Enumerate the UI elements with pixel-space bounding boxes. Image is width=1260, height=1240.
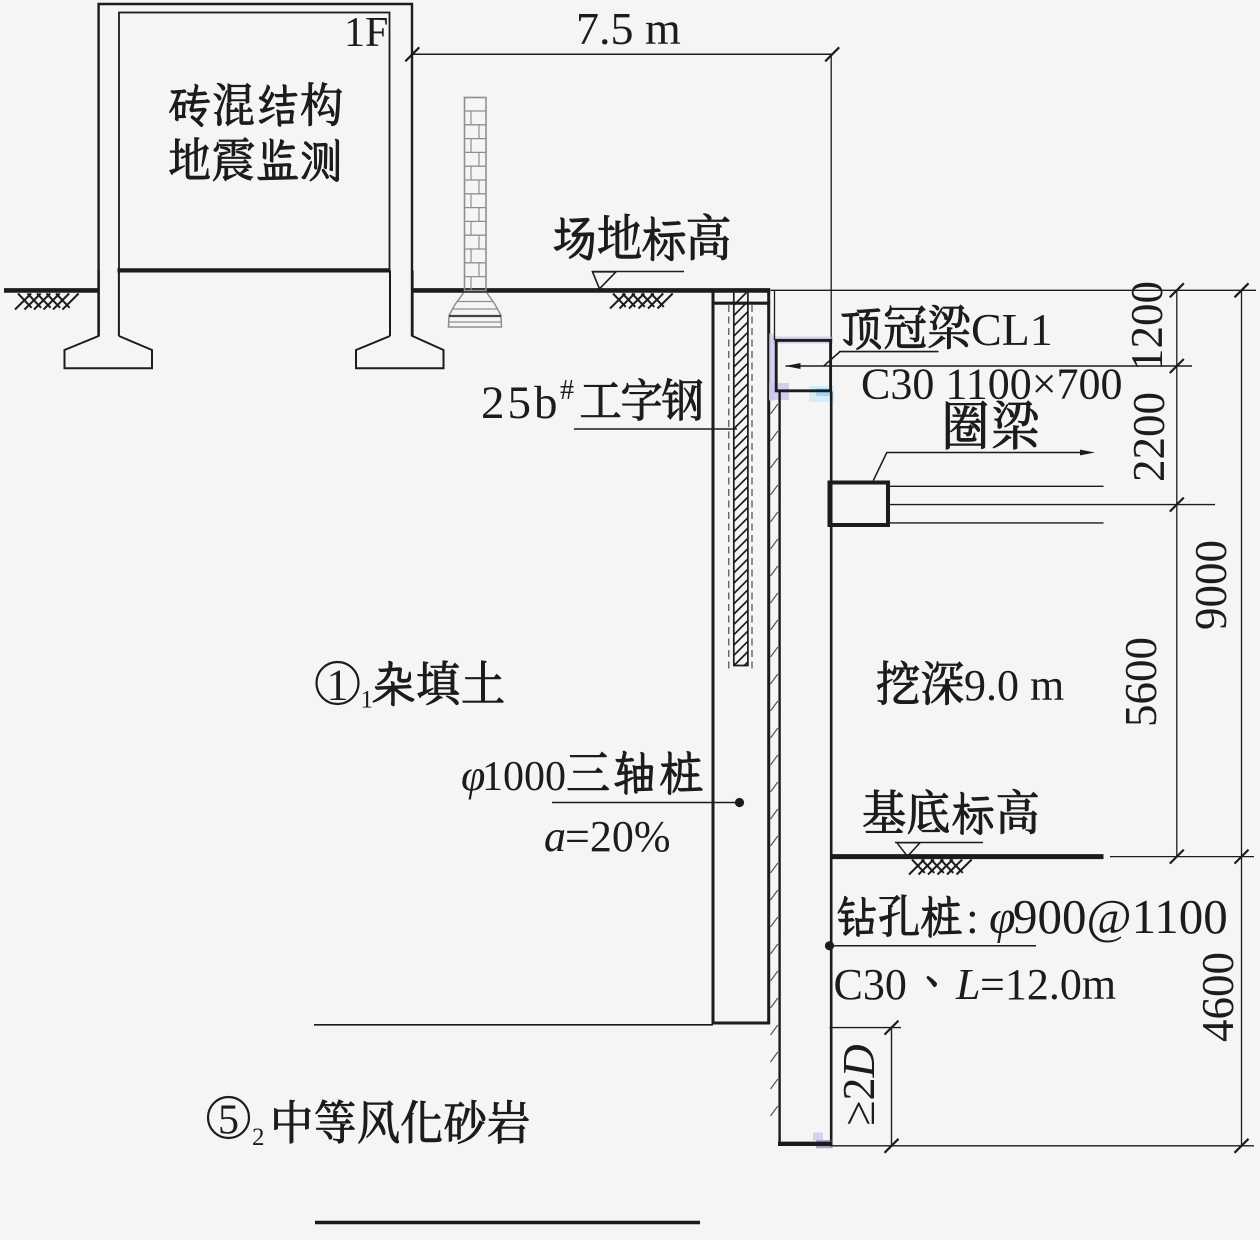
svg-text:5: 5 — [218, 1098, 239, 1144]
svg-text:2200: 2200 — [1124, 392, 1174, 482]
svg-text:=20%: =20% — [565, 812, 670, 861]
svg-text:φ: φ — [989, 891, 1016, 944]
svg-text:C30: C30 — [834, 960, 907, 1009]
svg-text:#: # — [560, 375, 574, 406]
svg-text:=12.0m: =12.0m — [980, 960, 1116, 1009]
svg-text:5600: 5600 — [1116, 637, 1166, 727]
svg-text:2: 2 — [481, 377, 505, 429]
svg-text:≥2D: ≥2D — [833, 1044, 884, 1125]
svg-text::: : — [966, 892, 979, 943]
svg-text:4600: 4600 — [1193, 952, 1243, 1042]
svg-text:C30 1100×700: C30 1100×700 — [861, 360, 1123, 409]
svg-text:900@1100: 900@1100 — [1013, 889, 1228, 944]
svg-text:b: b — [534, 377, 558, 429]
svg-text:1: 1 — [327, 661, 349, 710]
svg-text:L: L — [955, 960, 980, 1009]
svg-text:9000: 9000 — [1186, 540, 1236, 630]
svg-text:1200: 1200 — [1122, 281, 1172, 371]
svg-text:2: 2 — [252, 1124, 265, 1151]
svg-text:1000: 1000 — [482, 754, 566, 800]
svg-text:1: 1 — [361, 687, 374, 714]
svg-text:5: 5 — [508, 377, 532, 429]
svg-text:1F: 1F — [344, 10, 388, 56]
svg-text:a: a — [544, 812, 566, 861]
svg-text:7.5 m: 7.5 m — [576, 3, 681, 54]
svg-text:9.0 m: 9.0 m — [964, 661, 1064, 710]
svg-text:CL1: CL1 — [971, 304, 1053, 355]
